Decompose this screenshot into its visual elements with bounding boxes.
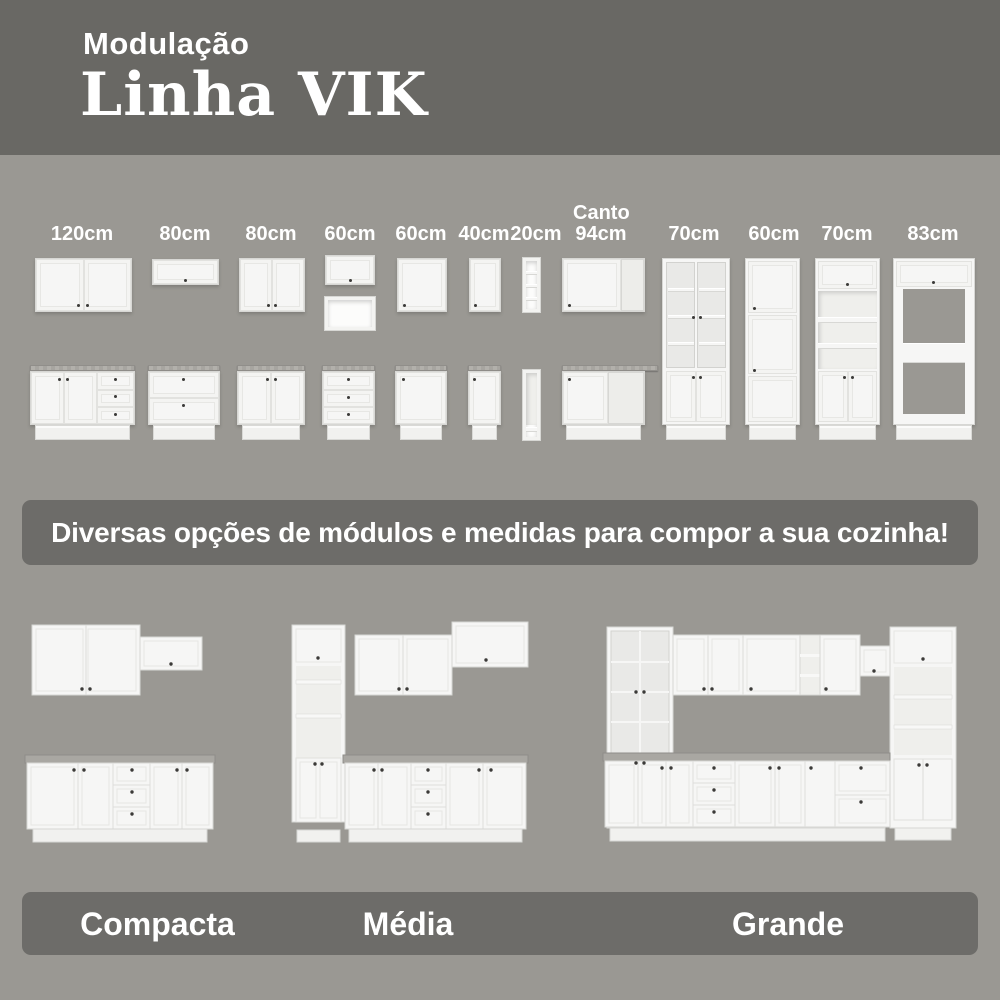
base-cabinet-60-icon [395,371,447,425]
tall-oven-tower-83-icon [893,258,975,425]
plinth [896,425,972,440]
plinth [749,425,796,440]
plinth [242,425,300,440]
plinth [153,425,215,440]
module-label-60a: 60cm [310,224,390,245]
plinth [327,425,370,440]
kitchen-grande-illustration [593,610,990,852]
kitchen-media-illustration [283,612,535,852]
tall-pantry-60-icon [745,258,800,425]
wall-cabinet-40-icon [469,258,501,312]
open-shelf-20-wall-icon [523,258,540,312]
module-label-canto: Canto 94cm [573,203,629,245]
plinth [35,425,130,440]
poster: Modulação Linha VIK 120cm 80cm 80cm 60cm… [0,0,1000,1000]
corner-base-cabinet-94-icon [562,371,645,425]
tall-glass-cabinet-70-icon [662,258,730,425]
wall-cabinet-120-icon [35,258,132,312]
plinth [819,425,876,440]
module-label-60c: 60cm [734,224,814,245]
module-label-80b: 80cm [231,224,311,245]
module-label-80a: 80cm [145,224,225,245]
plinth [666,425,726,440]
open-niche-60-icon [325,297,375,330]
base-drawer-cabinet-60-icon [322,371,375,425]
header: Modulação Linha VIK [0,0,1000,155]
wall-flip-cabinet-60-icon [325,255,375,285]
tall-open-tower-70-icon [815,258,880,425]
base-cabinet-40-icon [468,371,501,425]
module-label-83: 83cm [893,224,973,245]
wall-cabinet-80-icon [239,258,305,312]
header-kicker: Modulação [83,26,249,62]
base-cabinet-80-icon [237,371,305,425]
kitchen-compacta-illustration [15,612,220,852]
corner-wall-cabinet-94-icon [562,258,645,312]
banner-text: Diversas opções de módulos e medidas par… [22,500,978,565]
module-label-70b: 70cm [807,224,887,245]
plinth [566,425,641,440]
wall-flip-cabinet-80-icon [152,259,219,285]
plinth [400,425,442,440]
wall-cabinet-60-icon [397,258,447,312]
plinth [472,425,497,440]
kitchen-label-compacta: Compacta [60,906,255,943]
module-label-70a: 70cm [654,224,734,245]
page-title: Linha VIK [80,60,428,130]
banner: Diversas opções de módulos e medidas par… [22,500,978,565]
base-cabinet-120-icon [30,371,135,425]
module-label-120: 120cm [42,224,122,245]
kitchen-label-media: Média [328,906,488,943]
module-label-20: 20cm [496,224,576,245]
open-unit-20-base-icon [523,370,540,440]
base-drawer-cabinet-80-icon [148,371,220,425]
legend-band: Compacta Média Grande [22,892,978,955]
kitchen-label-grande: Grande [708,906,868,943]
